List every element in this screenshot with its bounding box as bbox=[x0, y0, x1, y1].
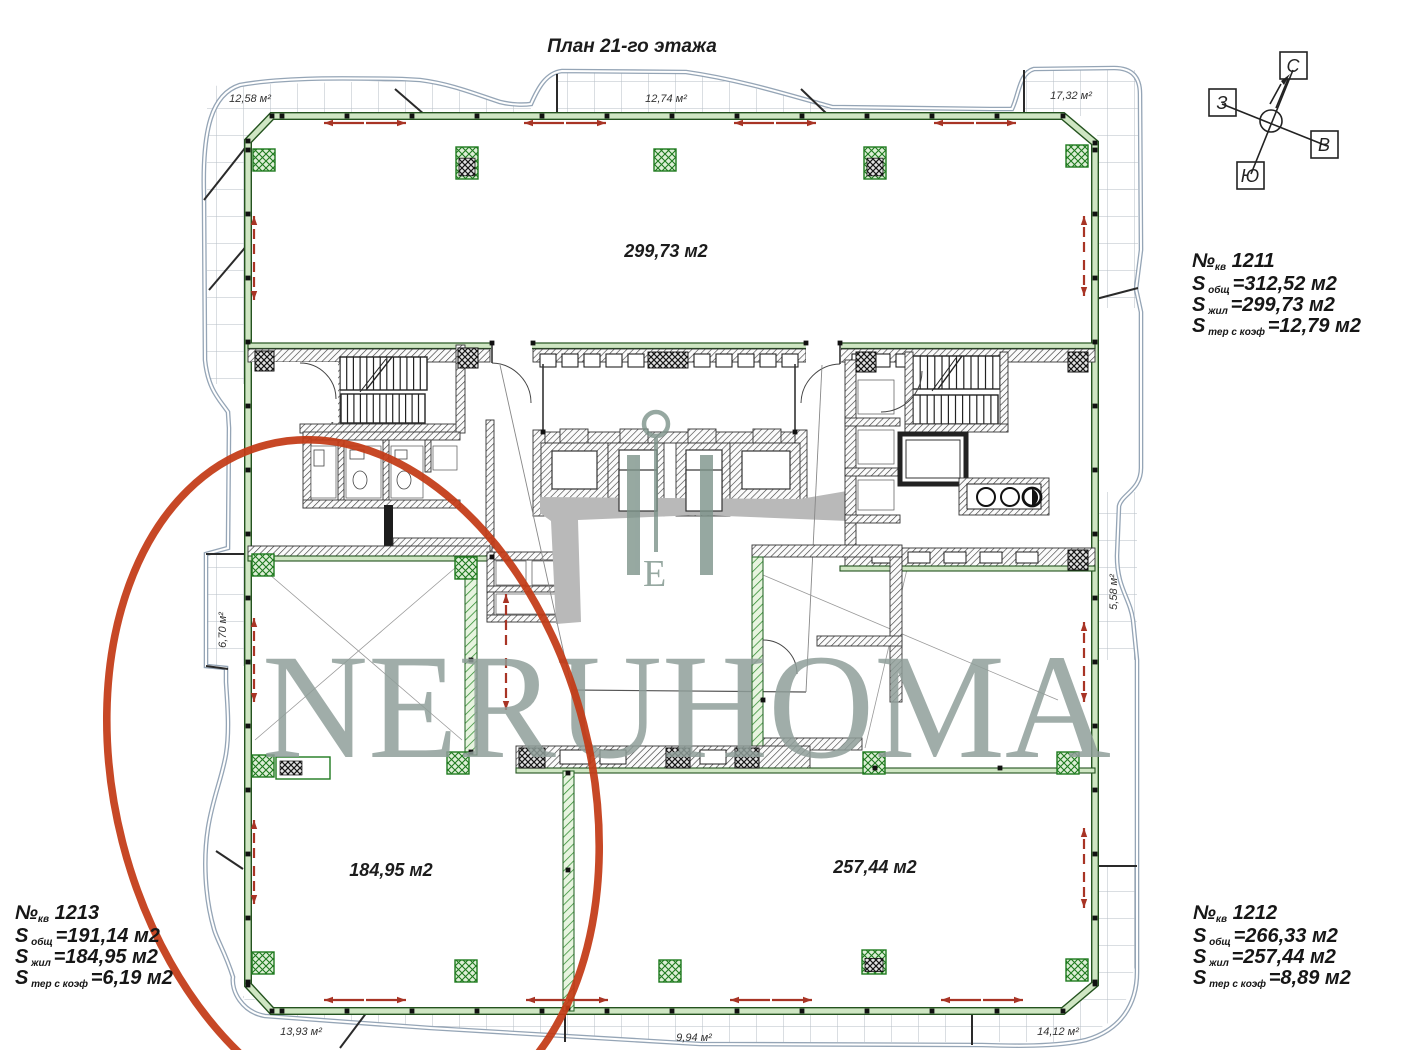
svg-text:Ю: Ю bbox=[1241, 166, 1259, 186]
svg-text:13,93 м²: 13,93 м² bbox=[280, 1026, 322, 1038]
svg-text:12,74 м²: 12,74 м² bbox=[645, 93, 687, 105]
svg-text:С: С bbox=[1287, 56, 1301, 76]
svg-text:6,70 м²: 6,70 м² bbox=[217, 612, 229, 648]
svg-text:З: З bbox=[1216, 93, 1227, 113]
svg-text:9,94 м²: 9,94 м² bbox=[676, 1032, 712, 1044]
svg-text:12,58 м²: 12,58 м² bbox=[229, 93, 271, 105]
svg-text:17,32 м²: 17,32 м² bbox=[1050, 90, 1092, 102]
svg-text:План 21-го этажа: План 21-го этажа bbox=[547, 36, 717, 57]
svg-text:184,95 м2: 184,95 м2 bbox=[349, 860, 432, 880]
svg-text:14,12 м²: 14,12 м² bbox=[1037, 1026, 1079, 1038]
svg-text:NERUHOMA: NERUHOMA bbox=[262, 624, 1111, 790]
svg-text:257,44 м2: 257,44 м2 bbox=[832, 857, 916, 877]
svg-text:E: E bbox=[643, 553, 666, 595]
svg-text:299,73 м2: 299,73 м2 bbox=[623, 241, 707, 261]
svg-text:В: В bbox=[1318, 135, 1330, 155]
svg-text:№кв 1212: №кв 1212 bbox=[1193, 902, 1277, 925]
svg-text:№кв 1211: №кв 1211 bbox=[1192, 250, 1275, 273]
svg-text:№кв 1213: №кв 1213 bbox=[15, 902, 99, 925]
svg-text:5,58 м²: 5,58 м² bbox=[1108, 574, 1120, 610]
